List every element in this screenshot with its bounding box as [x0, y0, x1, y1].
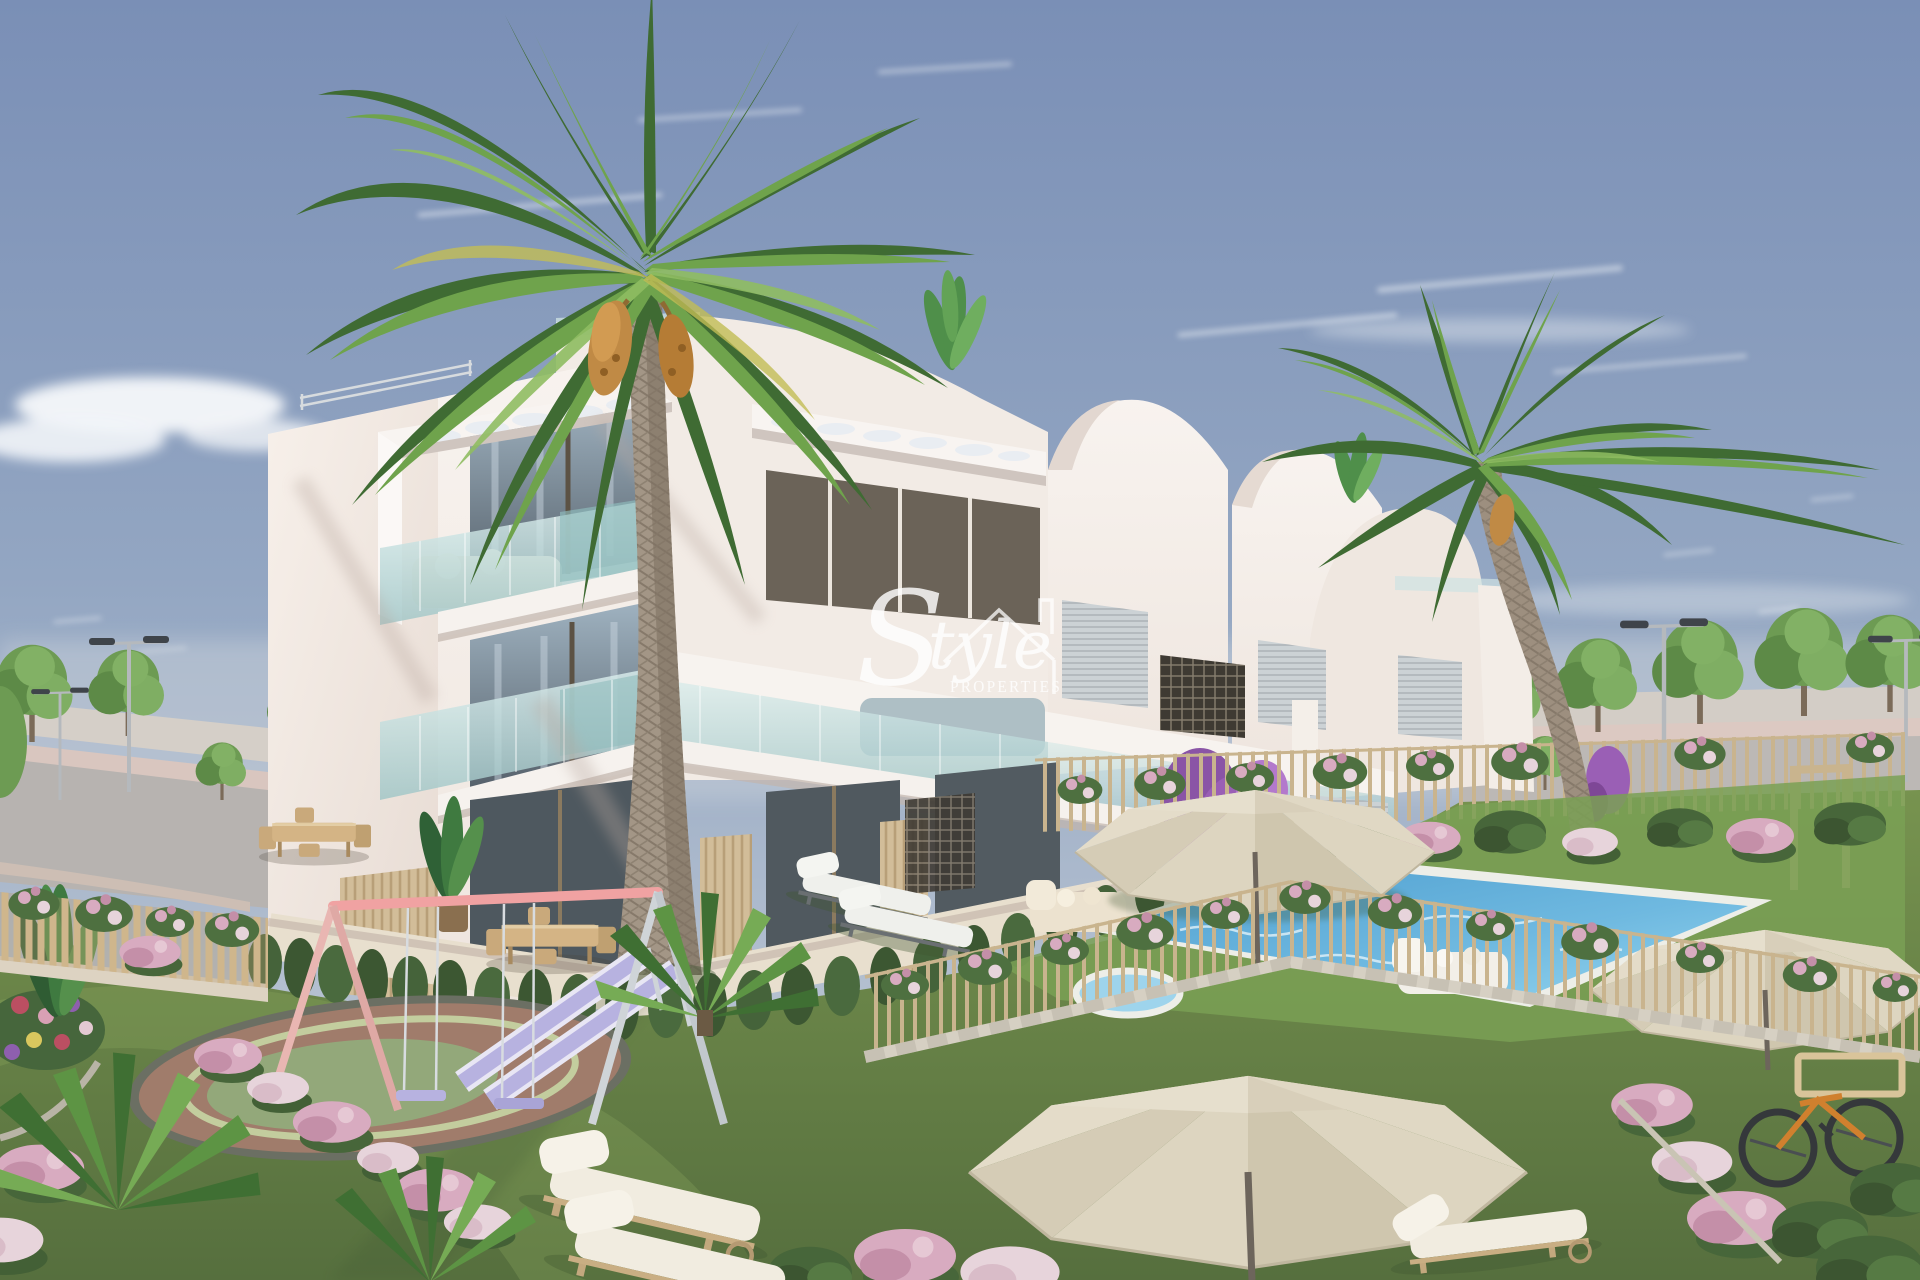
render-image: S tyle PROPERTIES: [0, 0, 1920, 1280]
shutter-window: [1398, 655, 1462, 740]
lattice-panel: [905, 793, 975, 894]
lattice-panel: [1160, 655, 1245, 738]
watermark-subtitle: PROPERTIES: [950, 677, 1062, 696]
swing-seat: [494, 1098, 544, 1109]
shutter-window: [1062, 600, 1148, 708]
watermark-brand-rest: tyle: [928, 607, 1052, 684]
swing-seat: [396, 1090, 446, 1101]
